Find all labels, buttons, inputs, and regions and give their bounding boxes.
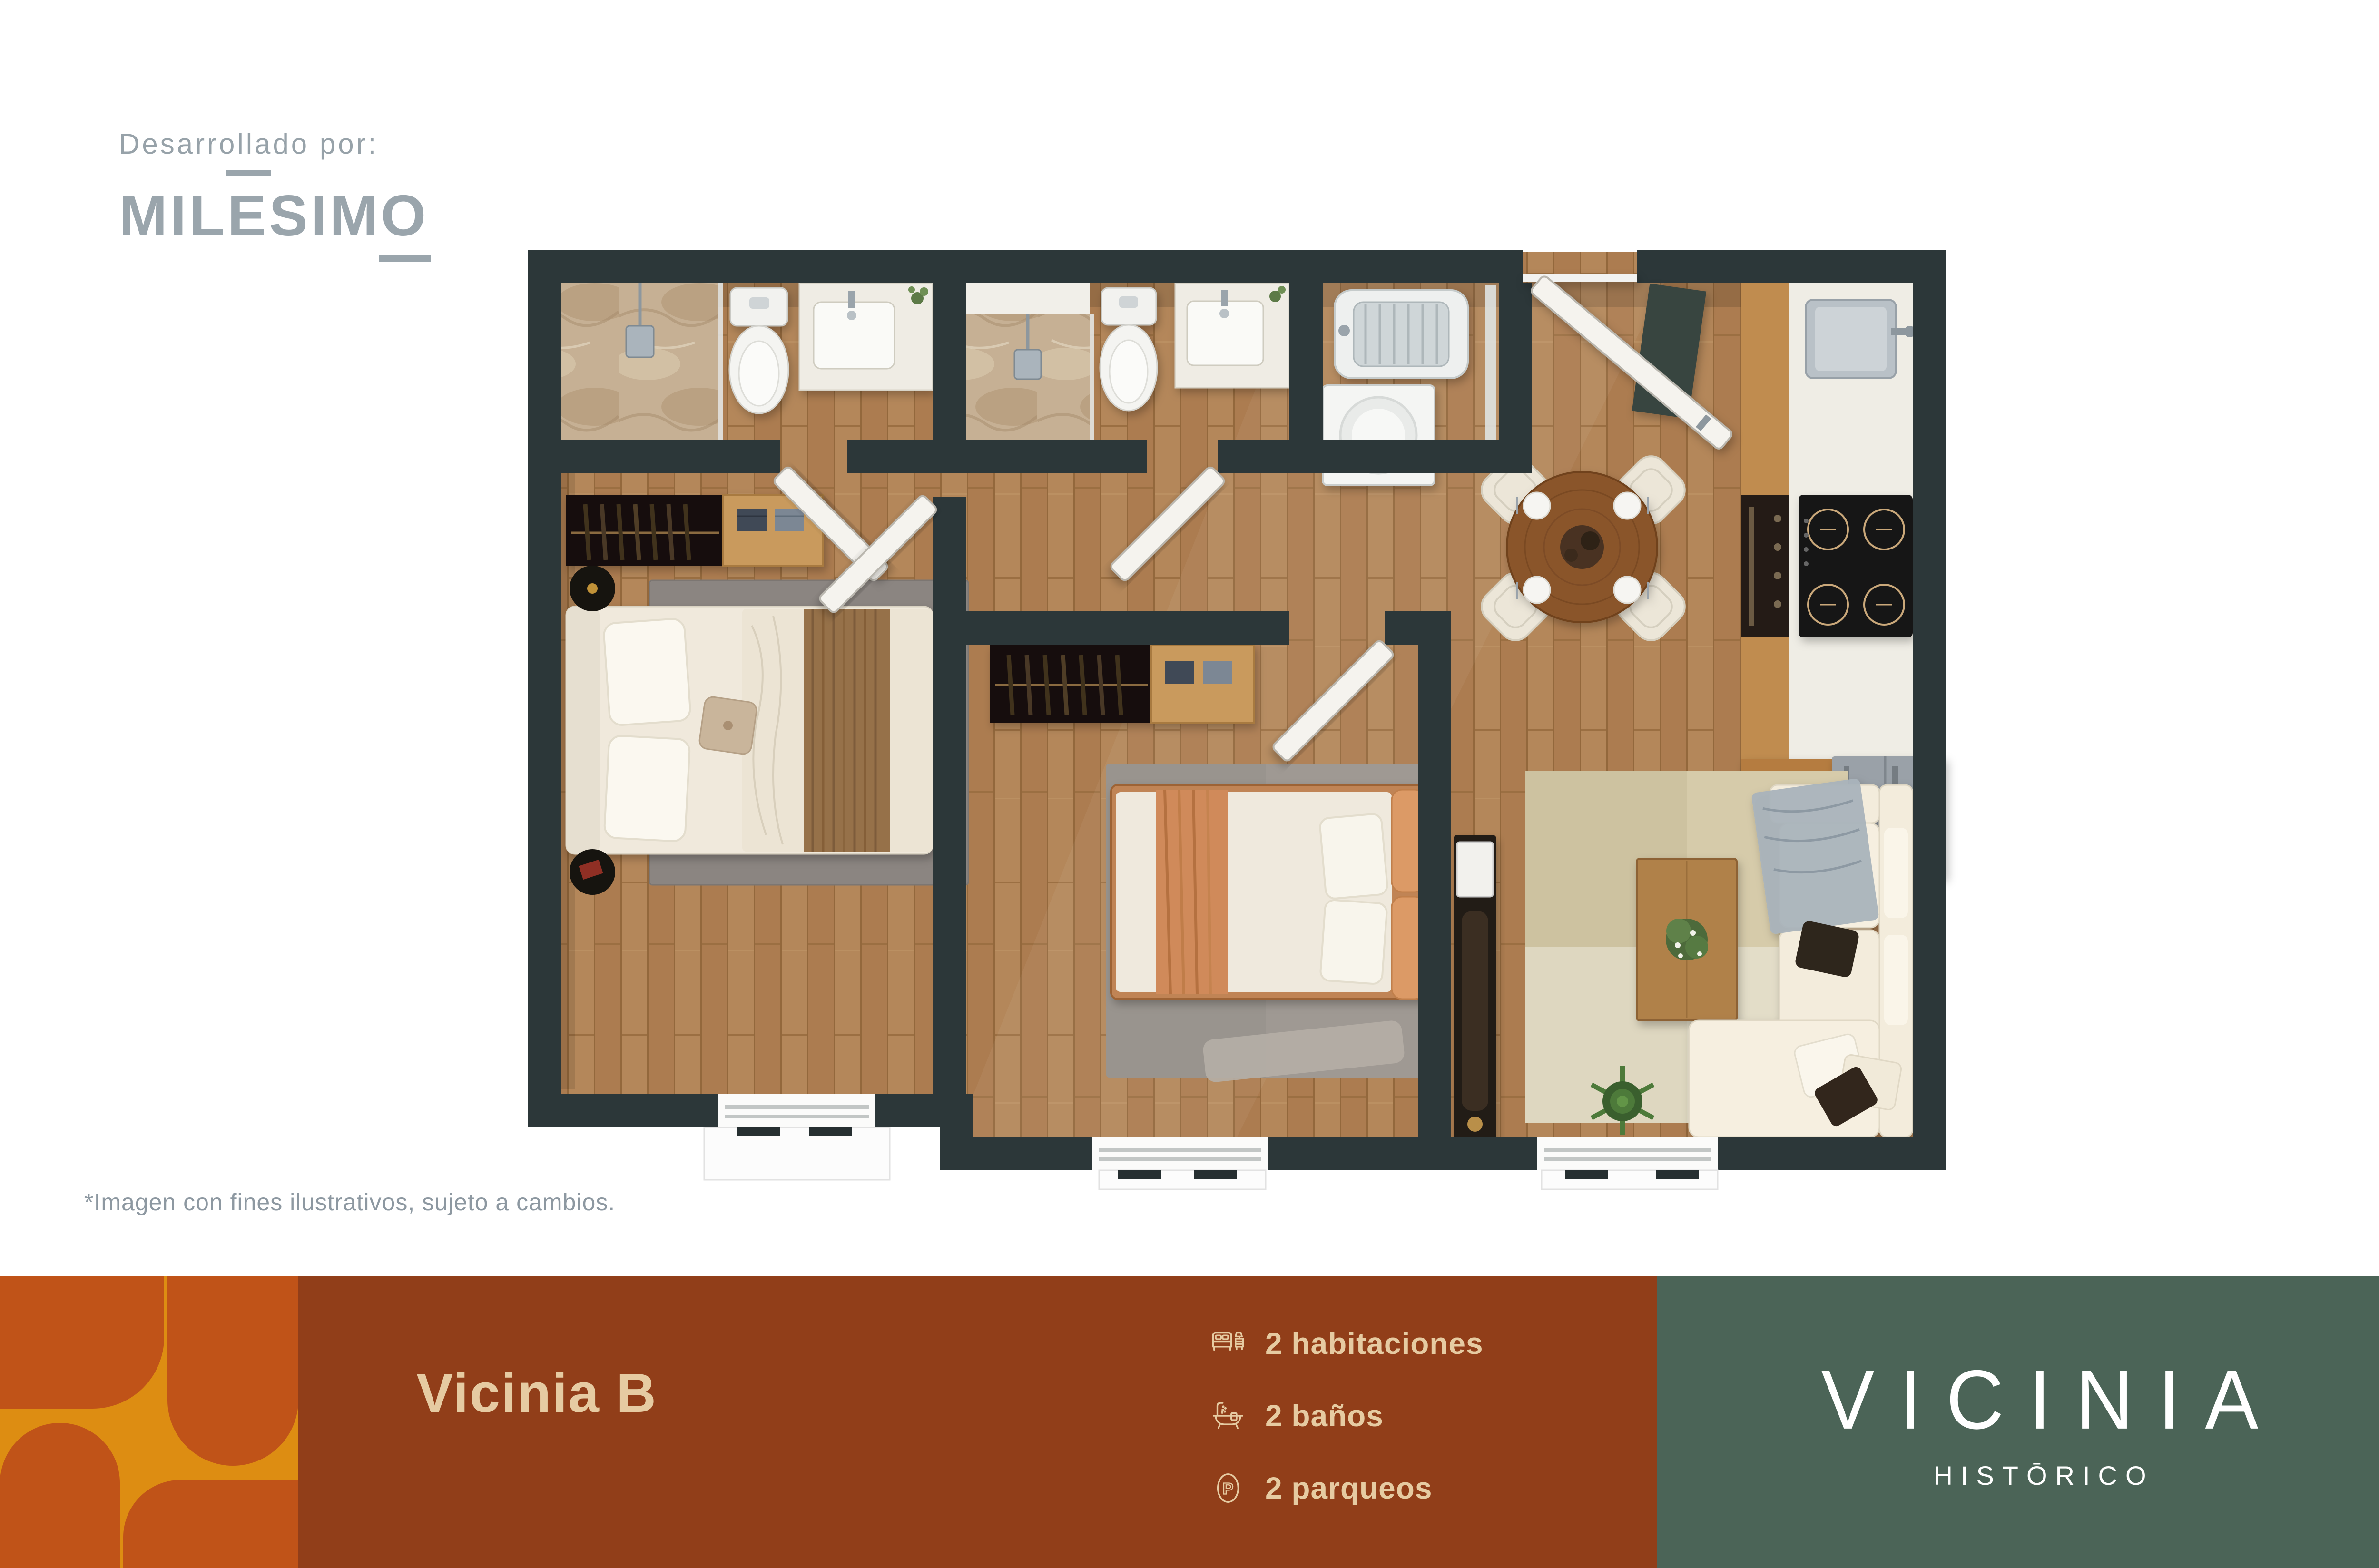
page: Desarrollado por: MILESIMO *Imagen con f…	[0, 0, 2379, 1568]
coffee-table	[1637, 859, 1737, 1020]
disclaimer-text: *Imagen con fines ilustrativos, sujeto a…	[84, 1188, 615, 1216]
pattern-shape	[123, 1480, 298, 1568]
branding-block: Desarrollado por: MILESIMO	[119, 127, 429, 249]
floor-plan	[514, 231, 1960, 1192]
feature-label: 2 habitaciones	[1265, 1326, 1484, 1361]
feature-label: 2 parqueos	[1265, 1470, 1432, 1506]
bed-icon	[1211, 1326, 1245, 1361]
info-banner: Vicinia B 2 habitacio	[0, 1276, 2379, 1568]
feature-list: 2 habitaciones 2 ba	[1211, 1326, 1484, 1506]
pattern-shape	[167, 1276, 298, 1466]
living-room	[1525, 771, 1913, 1137]
bed	[566, 607, 933, 854]
dining-table	[1507, 472, 1657, 622]
brand-subtitle: HISTŌRICO	[1925, 1460, 2154, 1491]
bathtub-icon	[1211, 1399, 1245, 1433]
closet	[566, 495, 823, 566]
bed	[1111, 785, 1425, 999]
closet	[990, 645, 1254, 723]
developed-by-label: Desarrollado por:	[119, 127, 429, 160]
cooktop	[1799, 495, 1913, 637]
feature-row-bedrooms: 2 habitaciones	[1211, 1326, 1484, 1361]
pattern-shape	[0, 1276, 164, 1409]
svg-text:P: P	[1223, 1480, 1234, 1498]
oven	[1741, 495, 1789, 637]
feature-label: 2 baños	[1265, 1398, 1384, 1433]
banner-pattern	[0, 1276, 298, 1568]
unit-title: Vicinia B	[416, 1361, 657, 1425]
brand-logo: VICINIA	[1797, 1352, 2283, 1448]
brand-panel: VICINIA HISTŌRICO	[1657, 1276, 2379, 1568]
feature-row-bathrooms: 2 baños	[1211, 1398, 1484, 1433]
feature-row-parking: P 2 parqueos	[1211, 1470, 1484, 1506]
developer-logo: MILESIMO	[119, 182, 429, 249]
tv-console	[1454, 835, 1496, 1144]
parking-icon: P	[1211, 1471, 1245, 1505]
pattern-shape	[0, 1423, 120, 1568]
banner-main: Vicinia B 2 habitacio	[298, 1276, 1657, 1568]
